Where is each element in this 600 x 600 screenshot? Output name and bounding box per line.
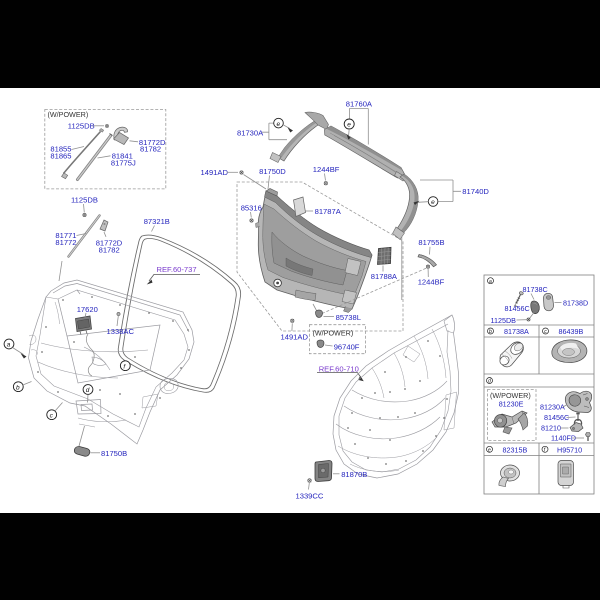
svg-text:d: d [488,379,491,385]
svg-text:e: e [488,448,491,454]
svg-text:1125DB: 1125DB [491,316,517,325]
svg-text:a: a [7,342,11,349]
svg-text:81750D: 81750D [259,167,286,176]
svg-text:e: e [347,122,351,129]
svg-text:81740D: 81740D [462,187,489,196]
svg-text:1125DB: 1125DB [68,122,95,131]
svg-text:81870B: 81870B [341,470,367,479]
svg-text:81230A: 81230A [540,403,565,412]
svg-text:82315B: 82315B [503,445,528,454]
svg-text:85316: 85316 [241,203,262,212]
svg-text:REF.60-737: REF.60-737 [157,265,197,274]
svg-text:17620: 17620 [77,305,98,314]
svg-text:96740F: 96740F [334,343,360,352]
svg-text:81782: 81782 [140,145,161,154]
svg-text:REF.60-710: REF.60-710 [319,364,359,373]
svg-text:1491AD: 1491AD [201,168,229,177]
svg-text:a: a [489,279,492,285]
svg-text:81738C: 81738C [523,285,548,294]
svg-text:81738A: 81738A [504,327,529,336]
svg-text:1244BF: 1244BF [418,277,445,286]
svg-text:87321B: 87321B [144,217,170,226]
svg-text:81210: 81210 [541,424,561,433]
svg-text:81787A: 81787A [315,207,342,216]
svg-text:d: d [86,387,90,394]
svg-text:81755B: 81755B [418,238,444,247]
svg-text:1140FD: 1140FD [551,434,576,443]
svg-text:(W/POWER): (W/POWER) [48,110,89,119]
svg-text:1125DB: 1125DB [71,195,98,204]
svg-text:81738D: 81738D [563,298,588,307]
svg-text:e: e [277,121,281,128]
svg-text:81730A: 81730A [237,128,264,137]
svg-text:81750B: 81750B [101,449,127,458]
svg-text:e: e [431,199,435,206]
svg-text:1491AD: 1491AD [281,332,309,341]
svg-text:81760A: 81760A [346,100,373,109]
svg-text:1339CC: 1339CC [296,492,324,501]
svg-text:86439B: 86439B [559,327,584,336]
svg-text:81788A: 81788A [371,272,398,281]
svg-text:H95710: H95710 [557,445,582,454]
svg-text:81456C: 81456C [544,413,569,422]
svg-text:1338AC: 1338AC [107,327,135,336]
svg-text:81230E: 81230E [499,400,524,409]
svg-text:1244BF: 1244BF [313,165,340,174]
svg-text:(W/POWER): (W/POWER) [313,328,354,337]
svg-text:b: b [16,384,20,391]
svg-text:81775J: 81775J [111,159,136,168]
svg-text:b: b [489,329,492,335]
svg-text:81772: 81772 [55,238,76,247]
svg-text:81782: 81782 [99,245,120,254]
svg-text:85738L: 85738L [336,313,361,322]
svg-text:81865: 81865 [50,151,71,160]
svg-text:81456C: 81456C [505,304,530,313]
